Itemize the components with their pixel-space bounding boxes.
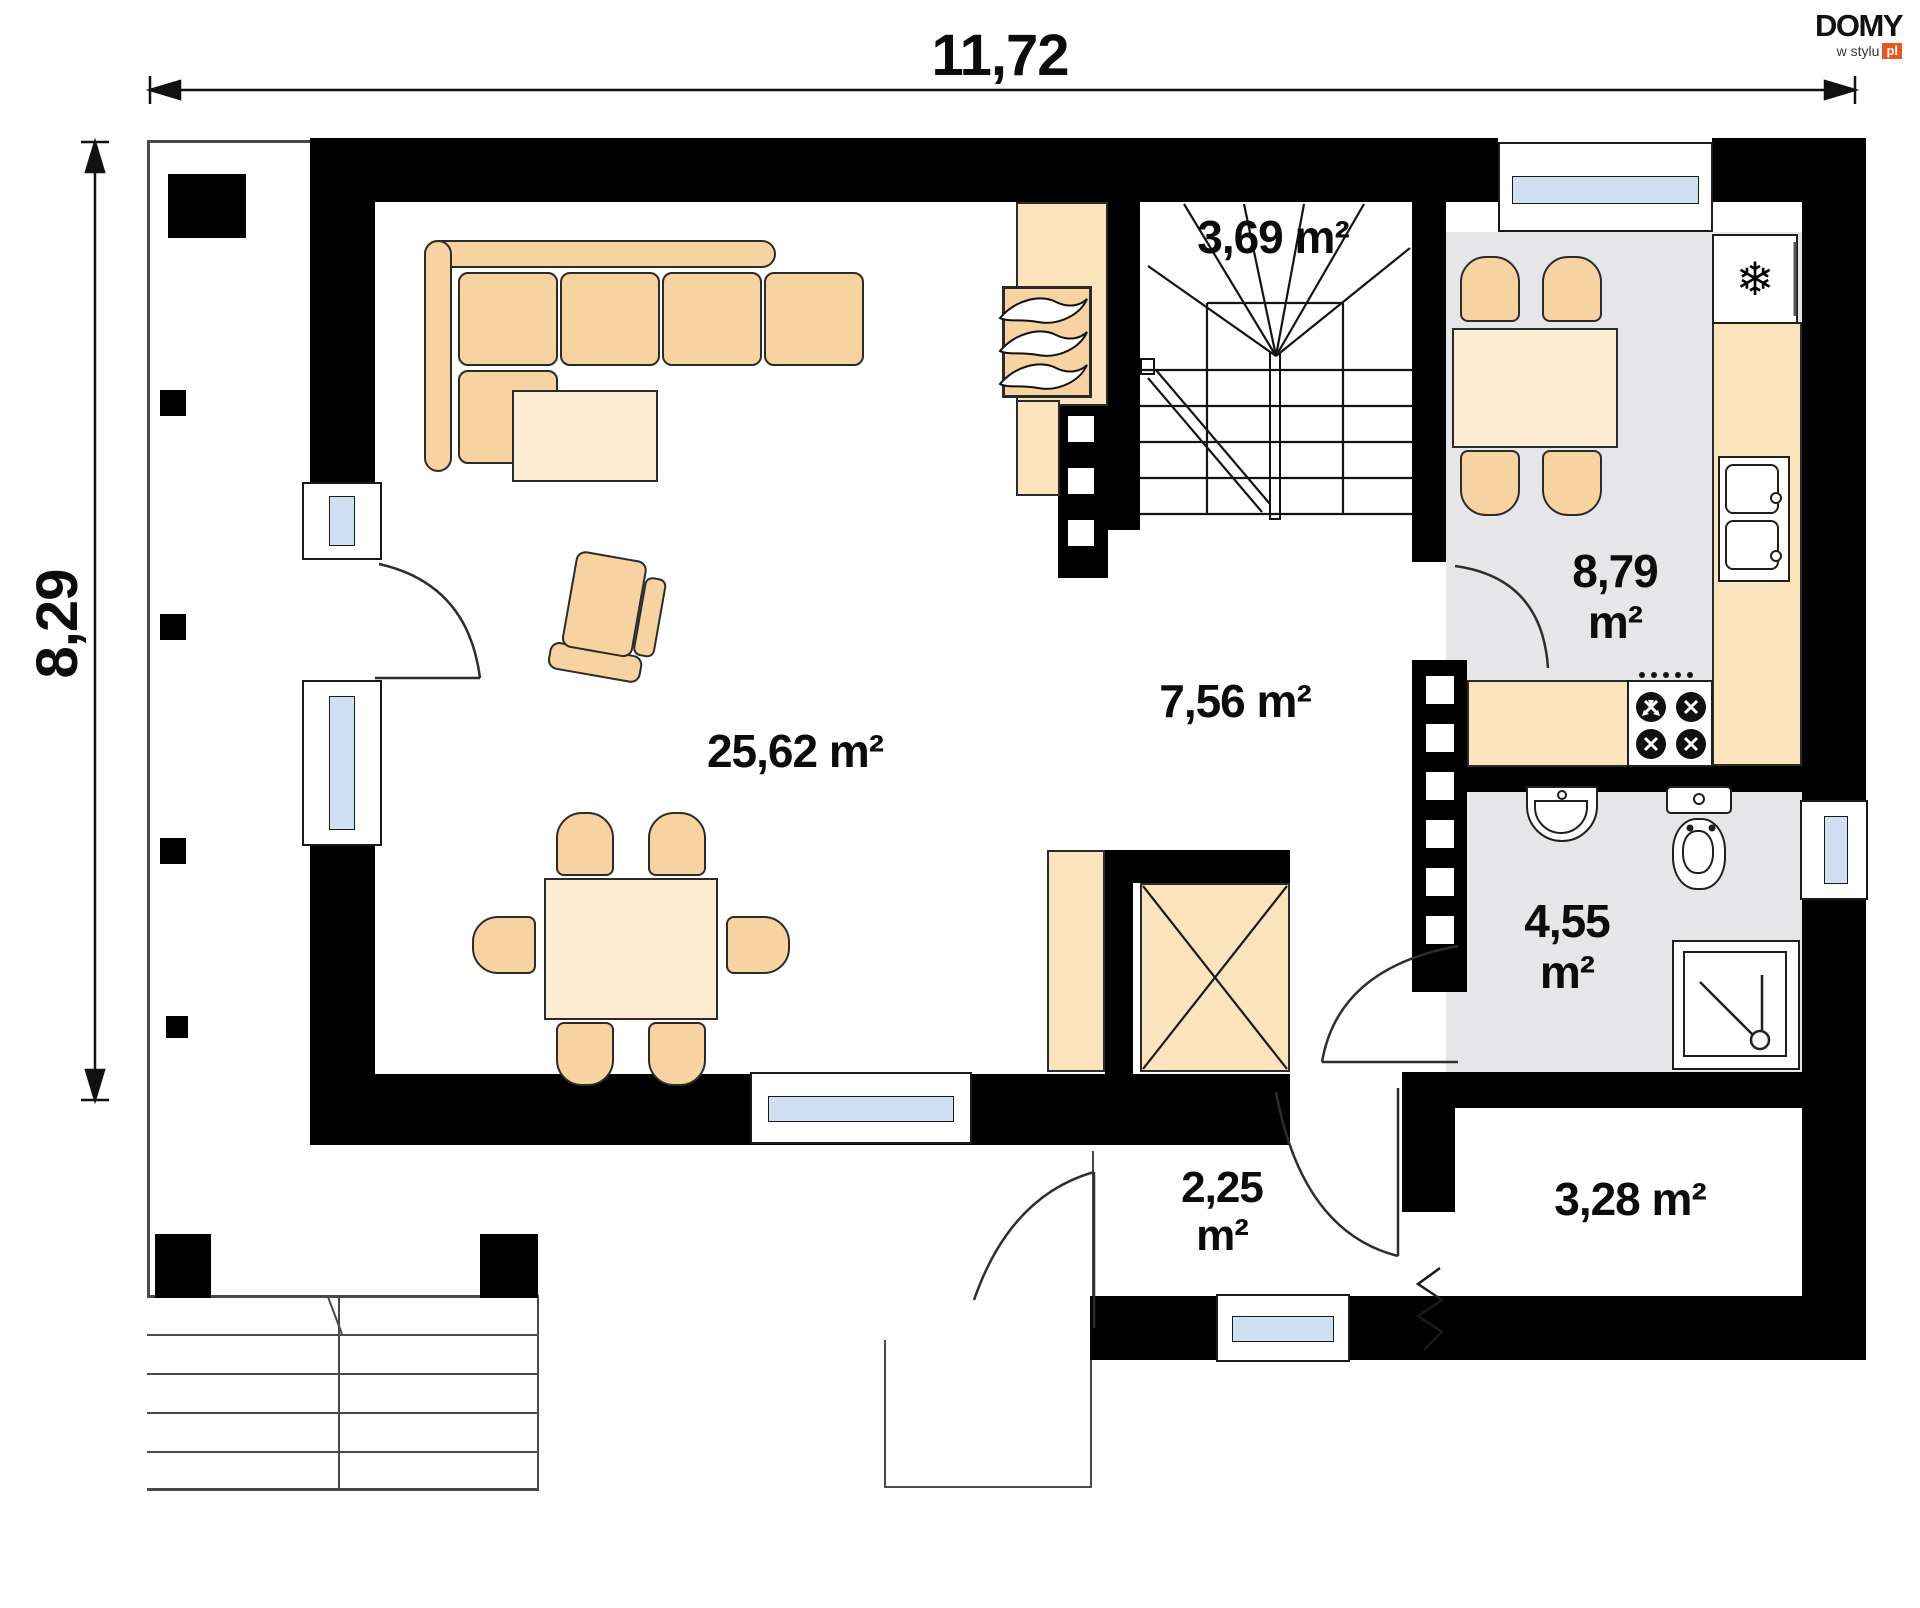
vestibule-area-unit: m² <box>1106 1212 1338 1260</box>
logo-subtitle: w stylu <box>1837 44 1880 58</box>
kitchen-area-label: 8,79 m² <box>1500 546 1730 647</box>
bathroom-area-label: 4,55 m² <box>1452 896 1682 997</box>
kitchen-area-value: 8,79 <box>1500 546 1730 597</box>
staircase-area-label: 3,69 m² <box>1128 212 1418 263</box>
dimension-height-label: 8,29 <box>26 534 90 714</box>
kitchen-area-unit: m² <box>1500 597 1730 648</box>
living-room-area-label: 25,62 m² <box>650 726 940 777</box>
bathroom-area-unit: m² <box>1452 947 1682 998</box>
floor-plan: ❄ <box>0 0 1920 1608</box>
door-living-left <box>375 564 480 678</box>
flame-icon <box>1000 299 1087 389</box>
wardrobe-x <box>1143 886 1287 1069</box>
zigzag-symbol <box>1418 1268 1442 1350</box>
logo-badge: pl <box>1882 43 1902 59</box>
dimension-width-label: 11,72 <box>700 22 1300 89</box>
bathroom-area-value: 4,55 <box>1452 896 1682 947</box>
logo-title: DOMY <box>1762 10 1902 41</box>
hall-area-label: 7,56 m² <box>1090 676 1380 727</box>
burner-icon <box>1636 672 1706 759</box>
door-vestibule-side <box>974 1172 1094 1328</box>
vestibule-area-label: 2,25 m² <box>1106 1164 1338 1261</box>
storage-area-label: 3,28 m² <box>1458 1174 1802 1225</box>
step-diagonal <box>328 1297 342 1334</box>
fixture-details <box>1558 493 1781 831</box>
door-bathroom <box>1322 946 1458 1062</box>
site-logo: DOMY w stylu pl <box>1762 10 1902 59</box>
vestibule-area-value: 2,25 <box>1106 1164 1338 1212</box>
shower-icon <box>1700 975 1769 1049</box>
plan-linework <box>0 0 1920 1608</box>
